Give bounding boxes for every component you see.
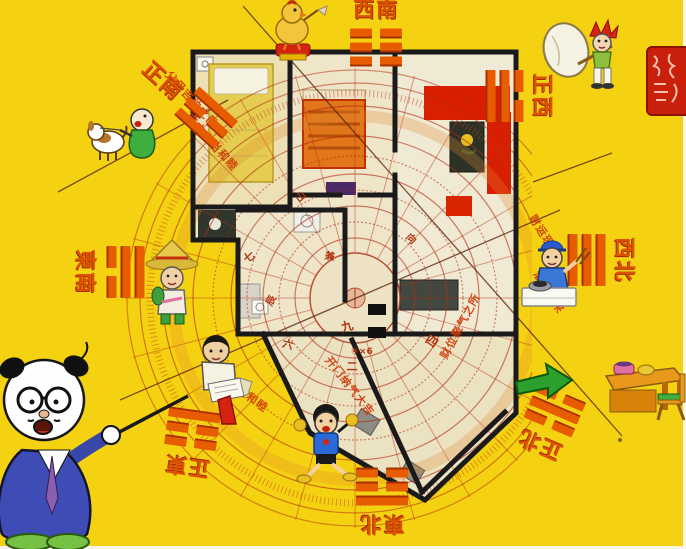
trigram-dui-icon	[486, 70, 524, 122]
farmer-straw-hat-icon	[142, 238, 202, 326]
green-arrow-icon	[516, 364, 572, 398]
direction-text-northwest: 西北	[611, 237, 641, 283]
desk-with-arrow-icon	[514, 360, 686, 428]
direction-text-southeast: 東南	[72, 249, 102, 295]
direction-text-northeast: 東北	[359, 511, 405, 541]
trigram-xun-icon	[107, 246, 145, 298]
direction-label-southwest: 西南	[350, 0, 402, 67]
professor-pointer-icon	[0, 338, 202, 549]
sack-carrier-icon	[538, 16, 628, 100]
direction-text-southwest: 西南	[353, 0, 399, 24]
seal-stamp-icon	[646, 46, 686, 116]
chick-on-stool-icon	[256, 0, 330, 62]
fengshui-poster: 九四二七六④×6山向辰兼 父母吉位之卧室南方交当和睦财运现象滚滚到来人丁兴旺和睦…	[0, 0, 686, 549]
dog-walker-icon	[86, 98, 170, 164]
jumping-boy-icon	[290, 402, 366, 486]
direction-label-southeast: 東南	[72, 246, 145, 298]
worker-at-counter-icon	[516, 236, 600, 318]
trigram-kun-icon	[350, 29, 402, 67]
speck	[618, 438, 622, 442]
